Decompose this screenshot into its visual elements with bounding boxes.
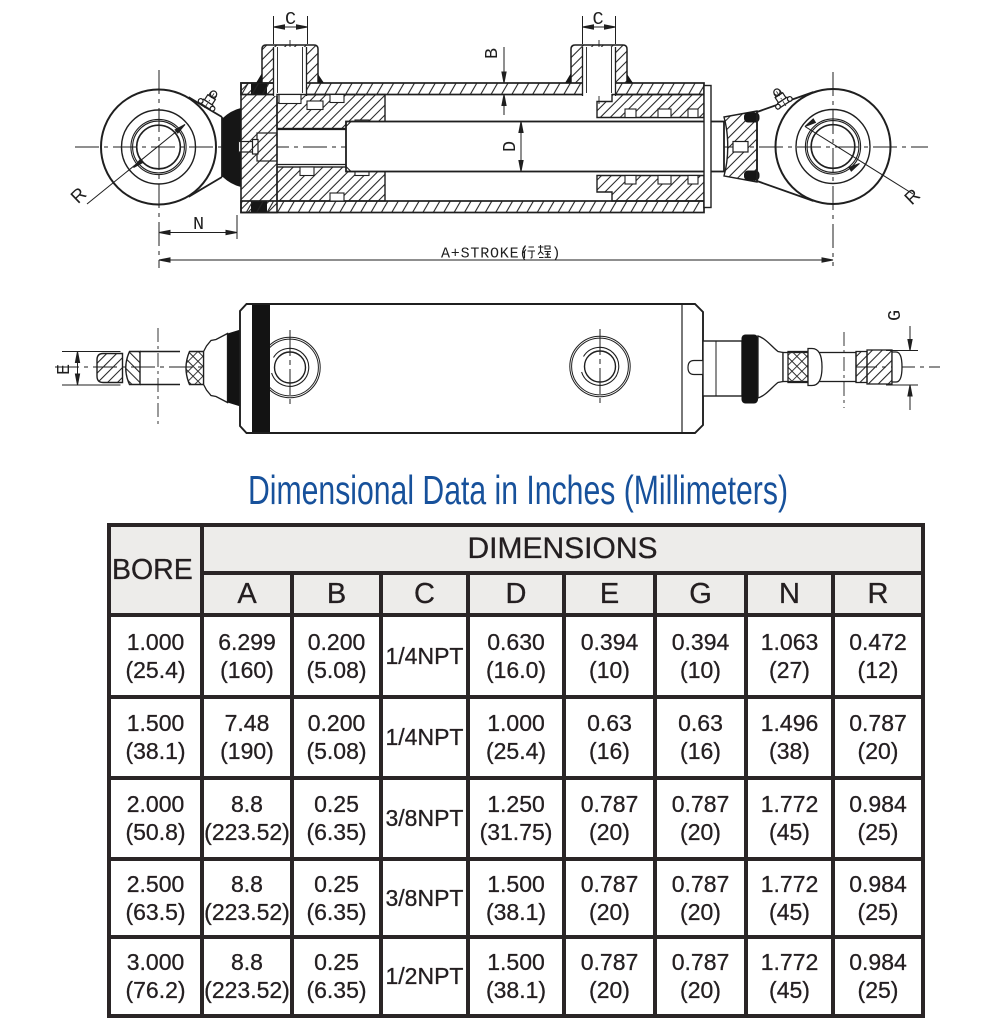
svg-text:G: G bbox=[885, 310, 906, 321]
svg-text:E: E bbox=[54, 364, 75, 375]
svg-text:N: N bbox=[193, 214, 204, 235]
svg-text:A+STROKE(: A+STROKE( bbox=[441, 246, 529, 263]
svg-text:C: C bbox=[285, 9, 296, 30]
svg-text:C: C bbox=[593, 9, 604, 30]
svg-text:): ) bbox=[552, 246, 561, 263]
svg-text:B: B bbox=[482, 48, 503, 59]
svg-text:D: D bbox=[500, 141, 521, 152]
